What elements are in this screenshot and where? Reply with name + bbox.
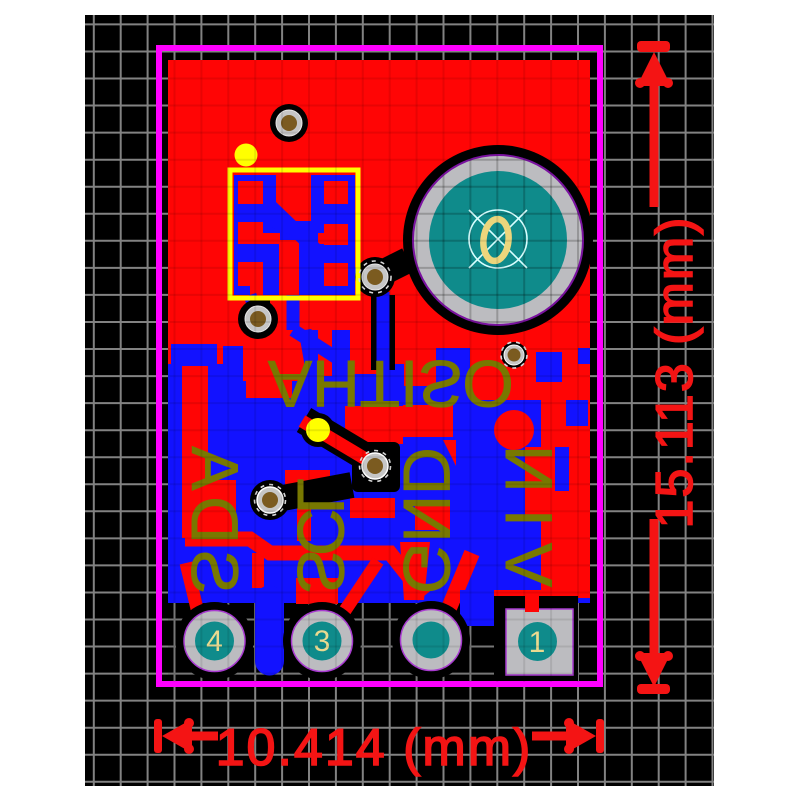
svg-text:10.414 (mm): 10.414 (mm) [216, 719, 533, 777]
svg-text:SDA: SDA [178, 440, 252, 594]
svg-text:SCL: SCL [284, 479, 358, 594]
svg-text:GND: GND [390, 447, 464, 594]
svg-text:AHTISO: AHTISO [268, 347, 514, 421]
svg-text:1: 1 [529, 626, 546, 659]
svg-text:3: 3 [314, 625, 331, 658]
svg-text:VIN: VIN [492, 429, 566, 587]
svg-text:15.113 (mm): 15.113 (mm) [646, 216, 704, 529]
svg-text:4: 4 [206, 625, 223, 658]
